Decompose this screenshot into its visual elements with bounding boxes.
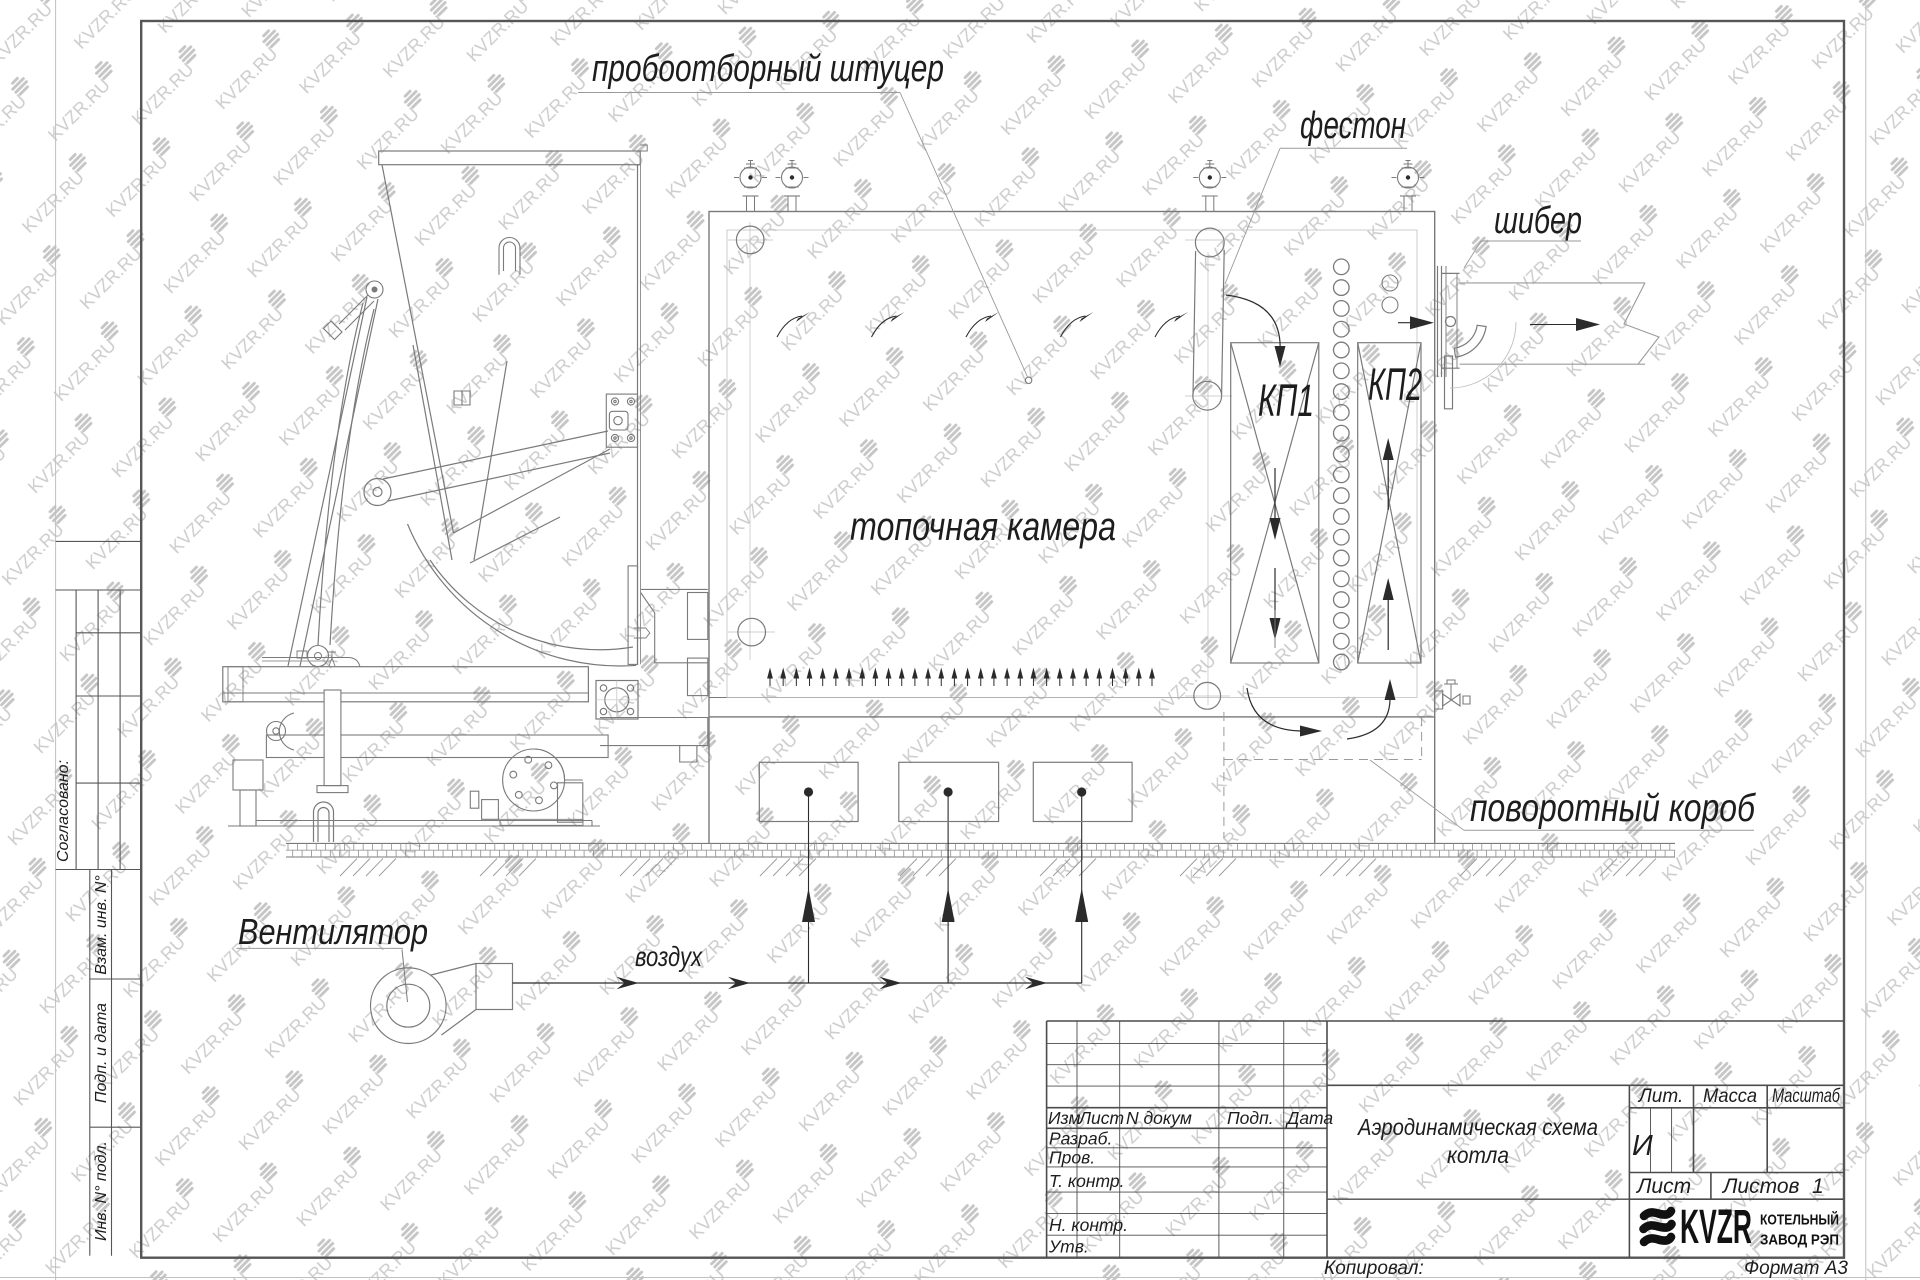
svg-text:Лит.: Лит.: [1637, 1086, 1684, 1107]
svg-text:шибер: шибер: [1494, 200, 1582, 242]
svg-text:Копировал:: Копировал:: [1324, 1258, 1424, 1279]
svg-text:И: И: [1632, 1130, 1653, 1162]
svg-text:Согласовано:: Согласовано:: [55, 760, 72, 862]
svg-text:Т. контр.: Т. контр.: [1049, 1171, 1124, 1191]
svg-text:КП1: КП1: [1258, 375, 1314, 426]
svg-text:Масштаб: Масштаб: [1772, 1086, 1841, 1107]
svg-text:поворотный короб: поворотный короб: [1470, 787, 1757, 830]
svg-text:Масса: Масса: [1703, 1086, 1757, 1107]
svg-text:1: 1: [1812, 1175, 1824, 1198]
svg-text:Пров.: Пров.: [1049, 1148, 1095, 1168]
svg-text:котла: котла: [1447, 1142, 1509, 1168]
svg-text:Листов: Листов: [1721, 1175, 1800, 1198]
svg-text:Разраб.: Разраб.: [1049, 1129, 1112, 1149]
svg-text:Аэродинамическая схема: Аэродинамическая схема: [1356, 1114, 1598, 1140]
svg-text:Инв. N° подл.: Инв. N° подл.: [93, 1141, 110, 1241]
svg-text:Утв.: Утв.: [1048, 1237, 1089, 1257]
svg-text:Подп. и дата: Подп. и дата: [93, 1003, 110, 1103]
svg-text:N докум: N докум: [1126, 1108, 1192, 1128]
svg-text:КОТЕЛЬНЫЙ: КОТЕЛЬНЫЙ: [1760, 1211, 1839, 1229]
svg-text:Н. контр.: Н. контр.: [1049, 1215, 1128, 1235]
svg-text:Формат А3: Формат А3: [1744, 1258, 1848, 1279]
svg-text:Изм: Изм: [1048, 1108, 1080, 1128]
svg-text:KVZR: KVZR: [1680, 1201, 1752, 1254]
svg-text:Лист: Лист: [1078, 1108, 1124, 1128]
svg-text:Взам. инв. N°: Взам. инв. N°: [93, 875, 110, 975]
svg-text:фестон: фестон: [1300, 105, 1406, 147]
svg-text:пробоотборный штуцер: пробоотборный штуцер: [592, 48, 944, 90]
svg-text:Вентилятор: Вентилятор: [238, 911, 428, 952]
svg-text:Подп.: Подп.: [1227, 1108, 1274, 1128]
svg-text:КП2: КП2: [1368, 359, 1422, 410]
svg-text:Дата: Дата: [1285, 1108, 1333, 1128]
svg-text:топочная камера: топочная камера: [850, 505, 1116, 549]
svg-text:ЗАВОД РЭП: ЗАВОД РЭП: [1760, 1232, 1839, 1249]
svg-text:воздух: воздух: [635, 941, 703, 972]
svg-text:Лист: Лист: [1635, 1175, 1691, 1198]
